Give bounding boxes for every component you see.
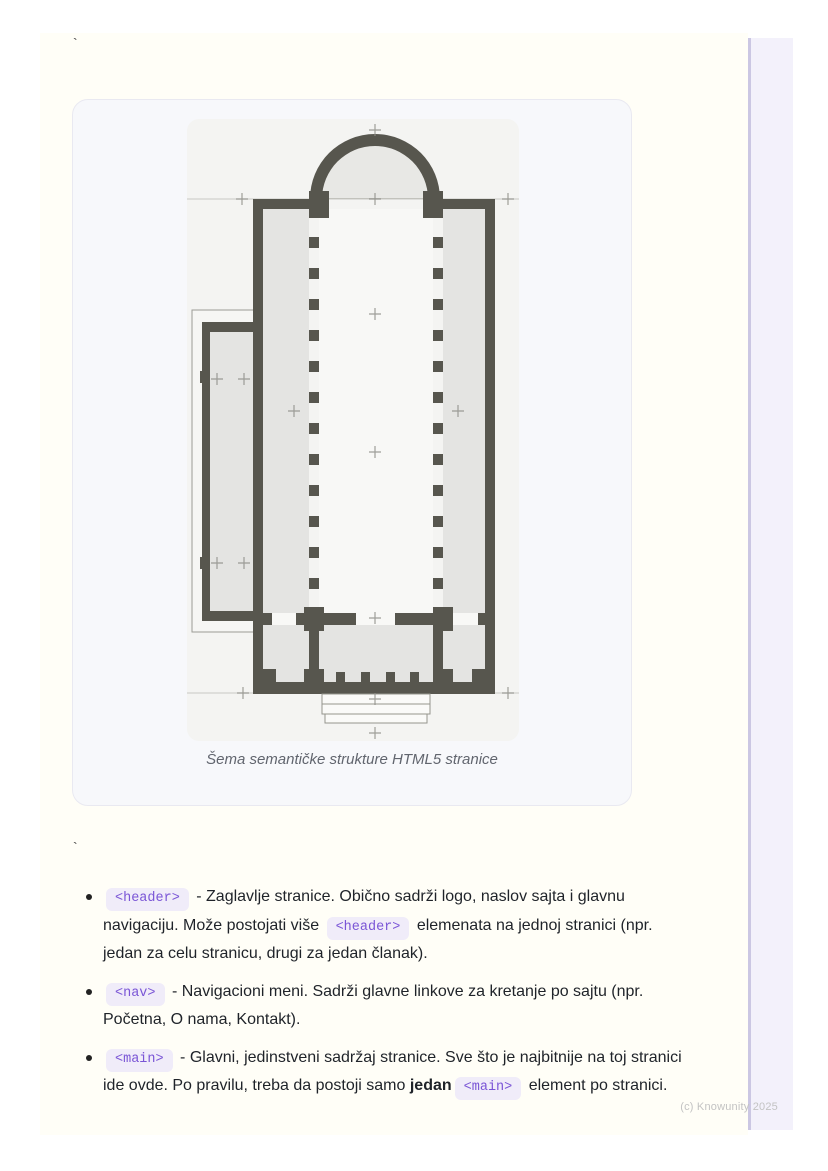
semantic-tags-list: <header> - Zaglavlje stranice. Obično sa…: [40, 883, 748, 1110]
floor-plan-svg: [187, 119, 519, 741]
code-tag: <header>: [327, 917, 410, 940]
stray-backtick-top: `: [73, 35, 78, 51]
watermark: (c) Knowunity 2025: [680, 1101, 778, 1113]
list-item: <main> - Glavni, jedinstveni sadržaj str…: [40, 1044, 748, 1101]
church-floor-plan-image: [187, 119, 519, 741]
document-page: `: [40, 33, 748, 1135]
scrollbar-track[interactable]: [748, 38, 793, 1130]
list-item: <header> - Zaglavlje stranice. Obično sa…: [40, 883, 748, 969]
figure-caption: Šema semantičke strukture HTML5 stranice: [73, 751, 631, 768]
list-item: <nav> - Navigacioni meni. Sadrži glavne …: [40, 978, 748, 1035]
code-tag: <nav>: [106, 983, 165, 1006]
stray-backtick-middle: `: [73, 839, 78, 855]
bold-text: jedan: [410, 1077, 452, 1094]
code-tag: <main>: [455, 1077, 522, 1100]
figure-card: Šema semantičke strukture HTML5 stranice: [72, 99, 632, 806]
code-tag: <header>: [106, 888, 189, 911]
code-tag: <main>: [106, 1049, 173, 1072]
